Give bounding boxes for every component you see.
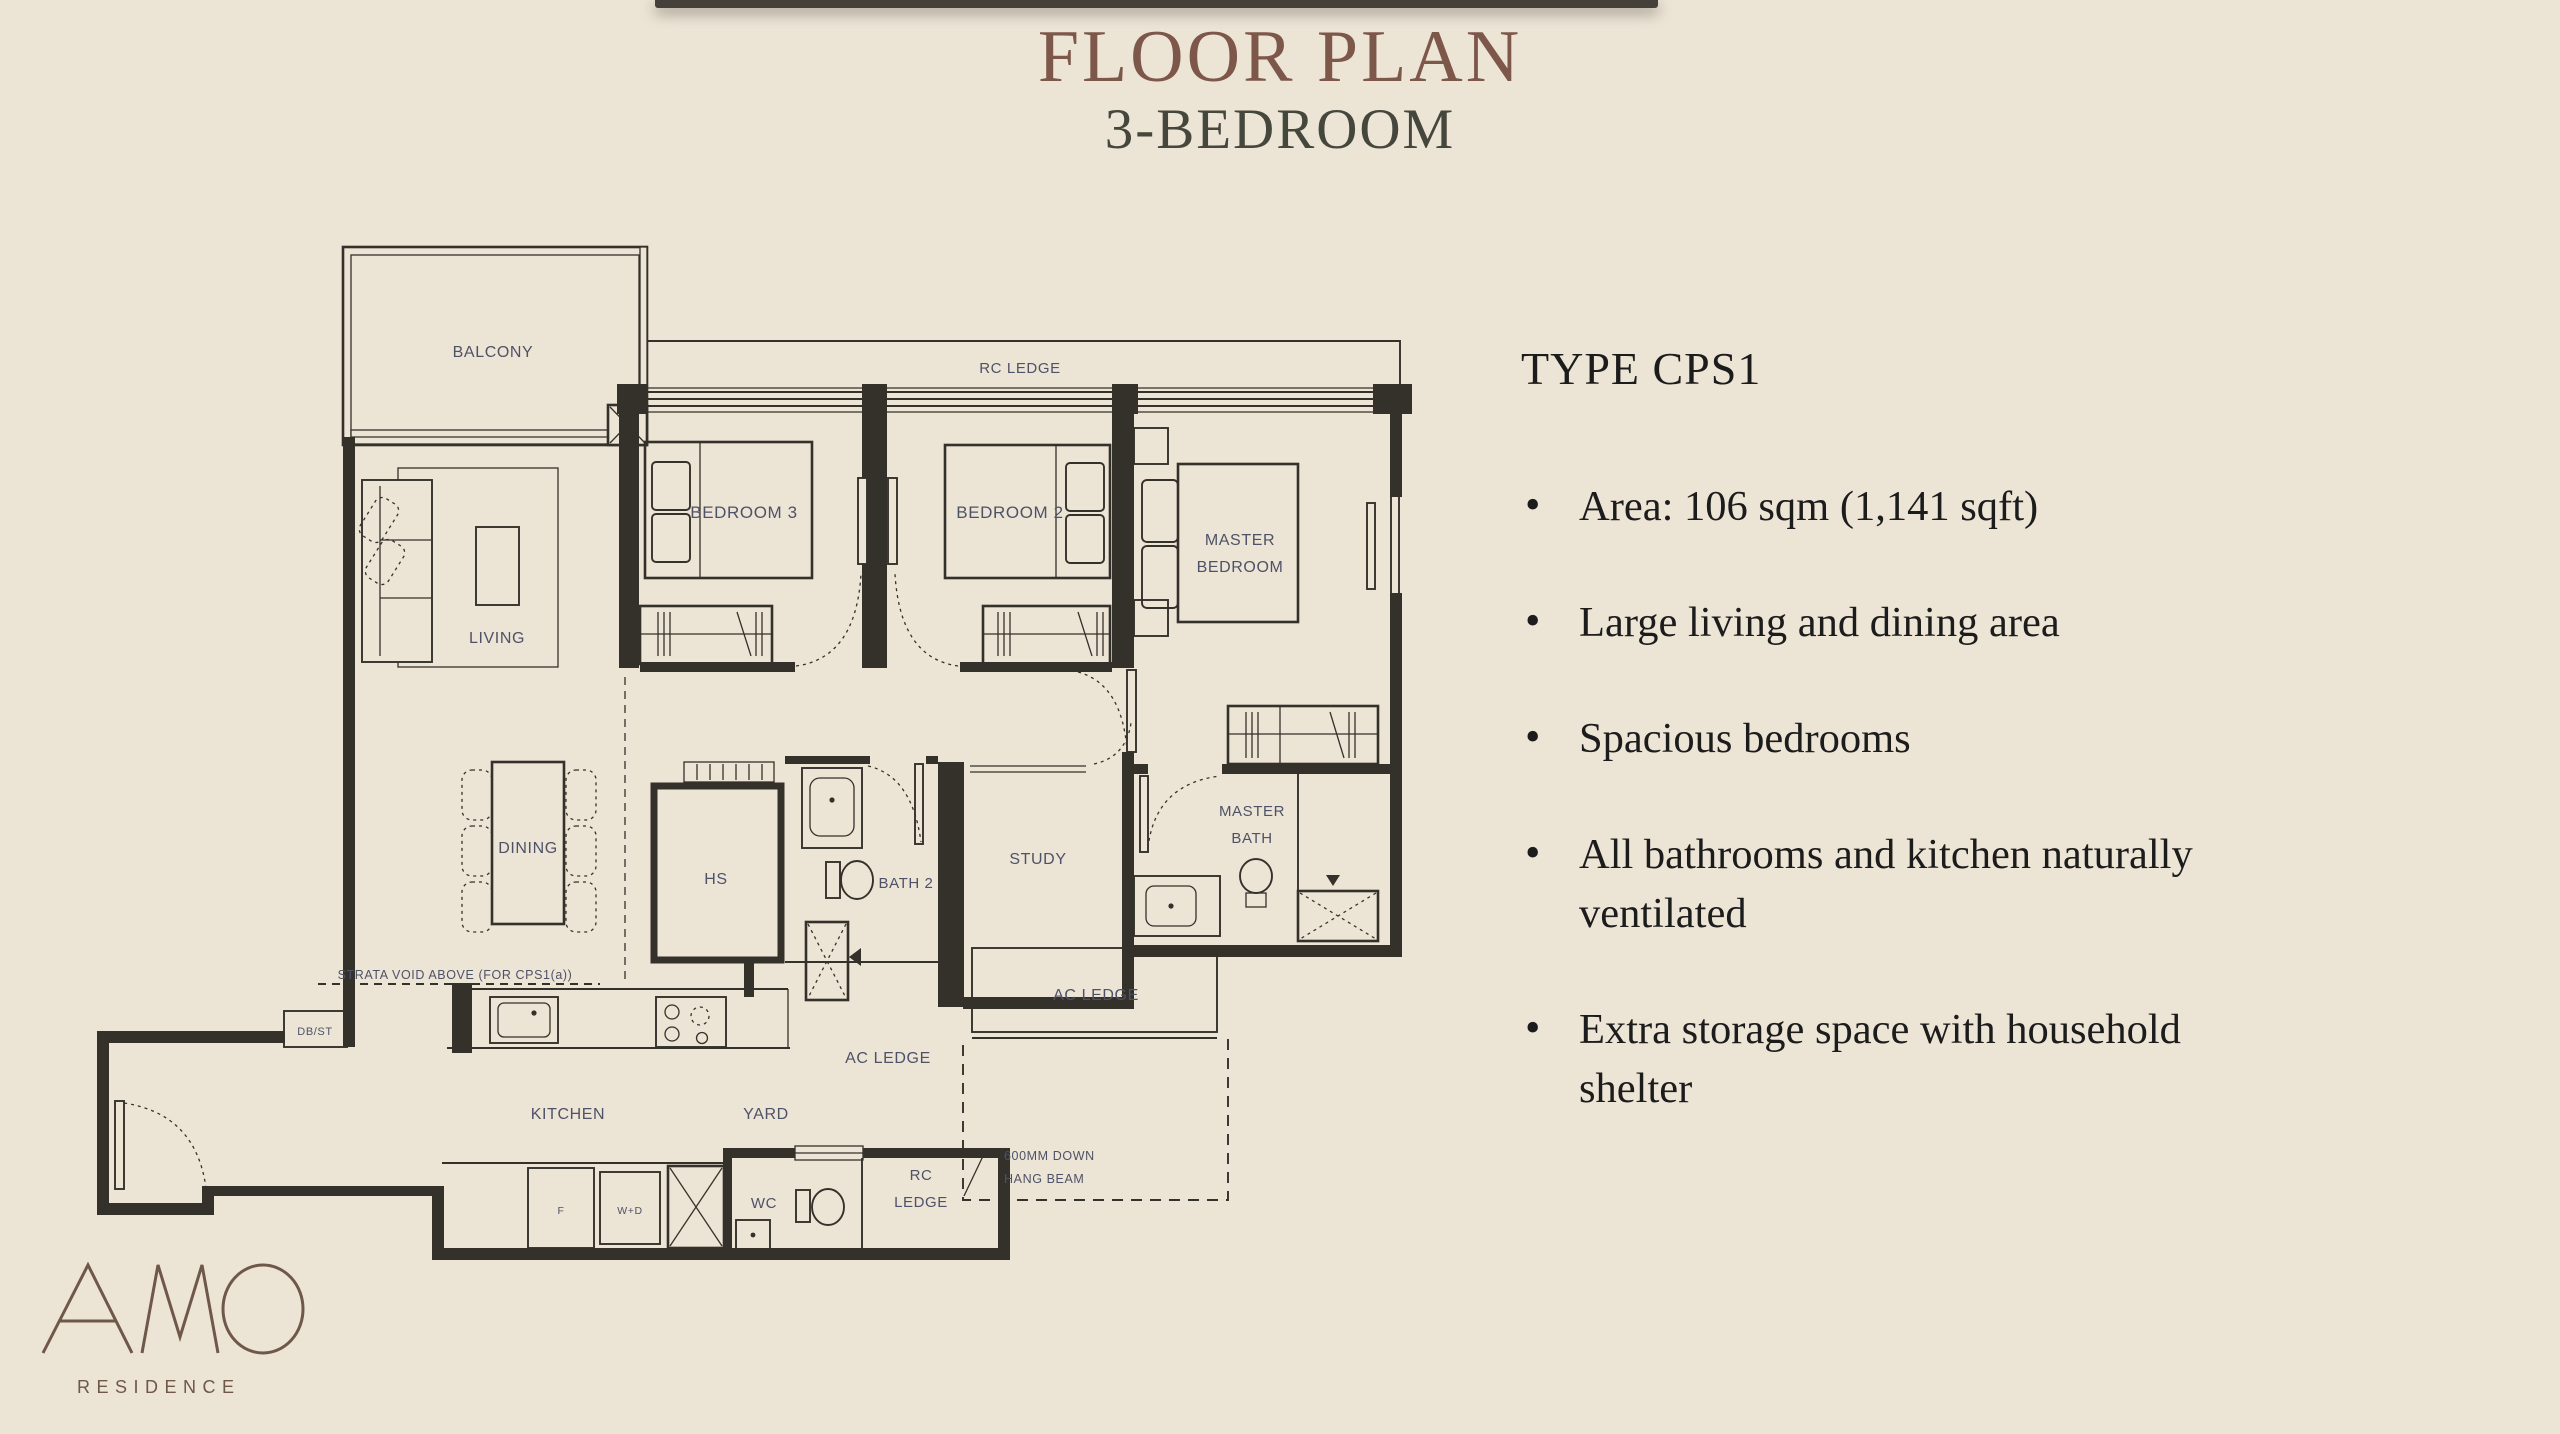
sofa-icon [356,480,432,662]
strata-void: STRATA VOID ABOVE (FOR CPS1(a)) [318,968,600,984]
door-arc [124,1103,206,1188]
ac-ledge-right-label: AC LEDGE [1053,987,1139,1004]
amo-logo-letters [43,1265,303,1353]
balcony-label: BALCONY [453,344,534,361]
amo-logo: RESIDENCE [33,1252,333,1412]
ac-ledge-right: AC LEDGE [972,948,1217,1038]
door-arc [895,574,958,666]
hang-beam-label-2: HANG BEAM [1004,1172,1084,1186]
washer-dryer-label: W+D [617,1205,642,1217]
slide: { "theme": { "background": "#ece4d5", "l… [0,0,2560,1434]
master-bedroom-label-2: BEDROOM [1197,559,1284,576]
master-bath-label-2: BATH [1231,830,1272,847]
feature-line: All bathrooms and kitchen naturally [1579,825,2381,884]
door-leaf [888,478,897,564]
door-leaf [1127,670,1136,752]
hang-beam-label-1: 600MM DOWN [1004,1149,1095,1163]
room-hs: HS [654,762,781,960]
feature-line: shelter [1579,1059,2381,1118]
hs-label: HS [704,871,727,888]
room-master-bath: MASTER BATH [1134,774,1378,941]
list-item: All bathrooms and kitchen naturally vent… [1521,825,2381,943]
door-arc [868,766,921,842]
room-bedroom2: BEDROOM 2 [888,445,1110,666]
fridge-label: F [557,1205,564,1217]
door-arc [796,574,861,666]
master-bath-label-1: MASTER [1219,803,1285,820]
room-bedroom3: BEDROOM 3 [640,442,867,666]
dining-label: DINING [498,840,558,857]
door-arc [1148,776,1220,848]
entry-door [115,1101,206,1189]
toilet-icon [796,1189,844,1225]
list-item: Large living and dining area [1521,593,2381,652]
sink-icon [1134,876,1220,936]
door-leaf [1140,776,1148,852]
yard-label: YARD [743,1106,789,1123]
room-study: STUDY [970,723,1131,868]
feature-line: Extra storage space with household [1579,1000,2381,1059]
strata-void-label: STRATA VOID ABOVE (FOR CPS1(a)) [338,968,573,982]
toilet-icon [826,861,873,899]
door-leaf [115,1101,124,1189]
shaft-icon [806,922,861,1000]
feature-line: Spacious bedrooms [1579,709,2381,768]
feature-line: ventilated [1579,884,2381,943]
room-balcony: BALCONY [343,247,647,445]
living-label: LIVING [469,630,525,647]
wc-sink-icon [736,1220,770,1250]
top-wall [617,384,1412,414]
unit-type: TYPE CPS1 [1521,342,2381,395]
room-wc: WC [736,1146,863,1250]
kitchen-counter [447,989,790,1048]
wardrobe-icon [1228,706,1378,764]
bath2-label: BATH 2 [878,875,933,892]
sink-icon [802,768,862,848]
list-item: Extra storage space with household shelt… [1521,1000,2381,1118]
side-table-icon [1134,600,1168,636]
study-label: STUDY [1009,851,1066,868]
room-living: LIVING [356,468,558,667]
master-bedroom-label-1: MASTER [1205,532,1275,549]
logo-subtitle: RESIDENCE [77,1377,241,1397]
kitchen-bottom-counter: F W+D [442,1163,726,1248]
side-table-icon [1134,428,1168,464]
toilet-icon [1240,859,1272,907]
coffee-table-icon [476,527,519,605]
shaft-icon [668,1166,724,1248]
feature-list: Area: 106 sqm (1,141 sqft) Large living … [1521,477,2381,1118]
kitchen-label: KITCHEN [531,1106,605,1123]
room-dining: DINING [462,762,596,932]
wardrobe-icon [983,606,1110,664]
kitchen-sink-icon [490,997,558,1043]
wc-label: WC [751,1195,777,1212]
dbst-label: DB/ST [297,1026,332,1038]
door-leaf [858,478,867,564]
feature-line: Large living and dining area [1579,593,2381,652]
rc-ledge-top: RC LEDGE [640,247,1400,405]
wardrobe-icon [640,606,772,664]
door-leaf [915,764,923,844]
bedroom2-label: BEDROOM 2 [956,503,1063,522]
feature-line: Area: 106 sqm (1,141 sqft) [1579,477,2381,536]
dbst-closet: DB/ST [284,1011,347,1047]
rc-ledge-bottom-label-1: RC [910,1167,933,1184]
hang-beam-note: 600MM DOWN HANG BEAM [964,1149,1095,1196]
list-item: Area: 106 sqm (1,141 sqft) [1521,477,2381,536]
stove-icon [656,997,726,1047]
rc-ledge-top-label: RC LEDGE [979,360,1061,377]
door-arc [1078,672,1127,750]
ac-ledge-left-label: AC LEDGE [845,1050,931,1067]
shower-icon [1298,875,1378,941]
unit-details: TYPE CPS1 Area: 106 sqm (1,141 sqft) Lar… [1521,342,2381,1175]
rc-ledge-bottom-label-2: LEDGE [894,1194,948,1211]
list-item: Spacious bedrooms [1521,709,2381,768]
room-bath2: BATH 2 [785,764,938,1000]
bedroom3-label: BEDROOM 3 [690,503,797,522]
